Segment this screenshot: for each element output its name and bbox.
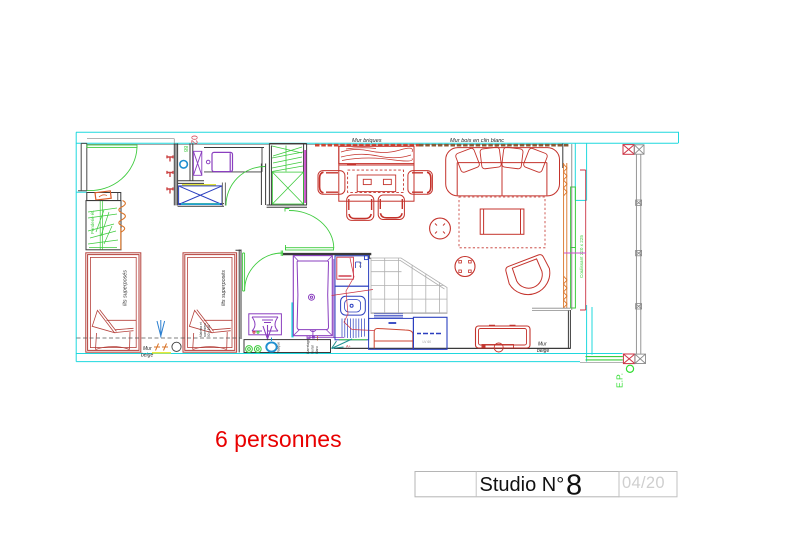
svg-text:Mur: Mur	[538, 342, 547, 348]
svg-text:Mur briques: Mur briques	[352, 138, 382, 144]
svg-text:Coulissant 220 x 225: Coulissant 220 x 225	[579, 235, 584, 278]
svg-text:Mur: Mur	[143, 346, 152, 352]
svg-text:Carrelage: Carrelage	[306, 339, 310, 354]
svg-text:90 x 190: 90 x 190	[207, 325, 211, 337]
svg-text:mural: mural	[311, 345, 315, 354]
svg-text:Mur bois en clin blanc: Mur bois en clin blanc	[450, 138, 504, 144]
svg-text:8: 8	[566, 470, 582, 502]
svg-text:88: 88	[182, 146, 188, 152]
svg-text:beige: beige	[141, 353, 153, 359]
svg-text:LV 60: LV 60	[423, 340, 432, 344]
svg-text:Vasque: Vasque	[277, 342, 281, 353]
svg-text:beige: beige	[537, 348, 549, 354]
svg-text:A+: A+	[346, 345, 352, 349]
svg-text:04/20: 04/20	[622, 474, 665, 492]
svg-text:lits superposés: lits superposés	[221, 270, 227, 306]
svg-text:02: 02	[190, 135, 200, 145]
svg-text:Penderie ét.: Penderie ét.	[90, 210, 95, 234]
svg-text:E.P.: E.P.	[615, 373, 625, 388]
svg-text:Studio N°: Studio N°	[480, 474, 565, 496]
svg-text:lits superposés: lits superposés	[123, 270, 129, 306]
svg-text:blanc: blanc	[315, 346, 319, 354]
svg-text:2 4: 2 4	[358, 262, 362, 267]
svg-text:6 personnes: 6 personnes	[215, 426, 342, 452]
